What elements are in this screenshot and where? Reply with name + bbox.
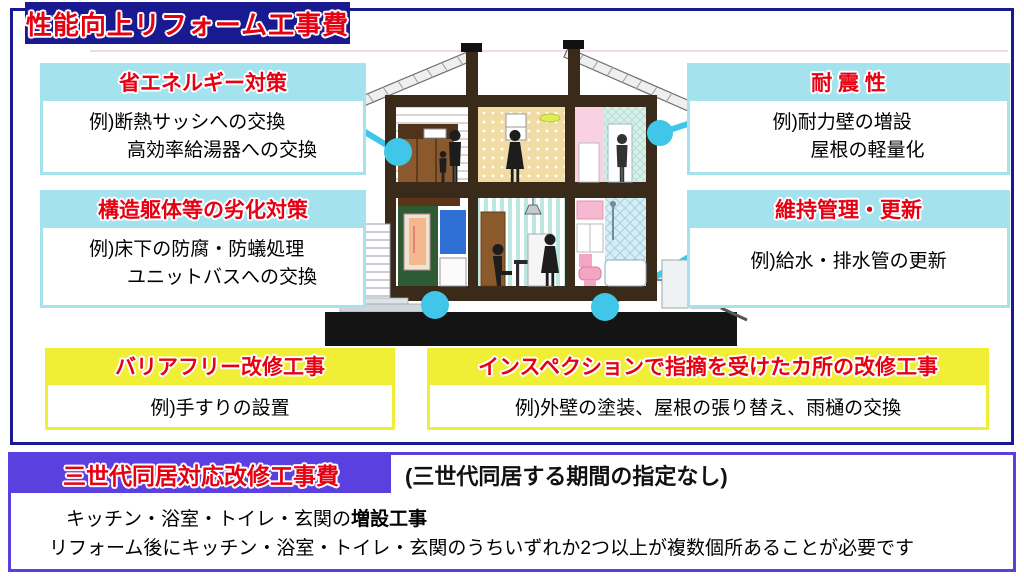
box-inspection: インスペクションで指摘を受けたカ所の改修工事 例)外壁の塗装、屋根の張り替え、雨… bbox=[427, 348, 989, 430]
first-floor-rooms bbox=[396, 198, 646, 286]
box-inspection-example-1: 例)外壁の塗装、屋根の張り替え、雨樋の交換 bbox=[430, 385, 986, 420]
box-barrier-free-example-1: 例)手すりの設置 bbox=[48, 385, 392, 420]
box-seismic-header: 耐 震 性 bbox=[690, 66, 1007, 101]
box-deterioration-example-2: ユニットバスへの交換 bbox=[89, 264, 317, 292]
second-floor-rooms bbox=[396, 107, 646, 182]
box-energy-example-1: 例)断熱サッシへの交換 bbox=[89, 109, 317, 137]
three-generation-line2: リフォーム後にキッチン・浴室・トイレ・玄関のうちいずれか2つ以上が複数個所あるこ… bbox=[11, 534, 1011, 563]
three-generation-title: 三世代同居対応改修工事費 bbox=[11, 455, 391, 493]
panel-title: 性能向上リフォーム工事費 bbox=[25, 2, 350, 44]
connector-dot bbox=[647, 120, 673, 146]
box-energy-header: 省エネルギー対策 bbox=[43, 66, 363, 101]
three-generation-panel: 三世代同居対応改修工事費 (三世代同居する期間の指定なし) キッチン・浴室・トイ… bbox=[8, 452, 1016, 572]
connector-dot bbox=[421, 291, 449, 319]
box-barrier-free-header: バリアフリー改修工事 bbox=[48, 351, 392, 385]
box-seismic: 耐 震 性 例)耐力壁の増設 屋根の軽量化 bbox=[687, 63, 1010, 175]
three-generation-subtitle: (三世代同居する期間の指定なし) bbox=[405, 459, 728, 491]
box-barrier-free: バリアフリー改修工事 例)手すりの設置 bbox=[45, 348, 395, 430]
box-maintenance-header: 維持管理・更新 bbox=[690, 193, 1007, 228]
box-deterioration-example-1: 例)床下の防腐・防蟻処理 bbox=[89, 236, 317, 264]
connector-dot bbox=[384, 138, 412, 166]
box-energy-saving: 省エネルギー対策 例)断熱サッシへの交換 高効率給湯器への交換 bbox=[40, 63, 366, 175]
three-generation-line1: キッチン・浴室・トイレ・玄関の増設工事 bbox=[11, 505, 1011, 534]
box-seismic-example-2: 屋根の軽量化 bbox=[772, 137, 924, 165]
box-maintenance-example-1: 例)給水・排水管の更新 bbox=[750, 248, 946, 276]
box-seismic-example-1: 例)耐力壁の増設 bbox=[772, 109, 924, 137]
connector-dot bbox=[591, 293, 619, 321]
box-energy-example-2: 高効率給湯器への交換 bbox=[89, 137, 317, 165]
box-deterioration: 構造躯体等の劣化対策 例)床下の防腐・防蟻処理 ユニットバスへの交換 bbox=[40, 190, 366, 308]
box-inspection-header: インスペクションで指摘を受けたカ所の改修工事 bbox=[430, 351, 986, 385]
box-maintenance: 維持管理・更新 例)給水・排水管の更新 bbox=[687, 190, 1010, 308]
box-deterioration-header: 構造躯体等の劣化対策 bbox=[43, 193, 363, 228]
